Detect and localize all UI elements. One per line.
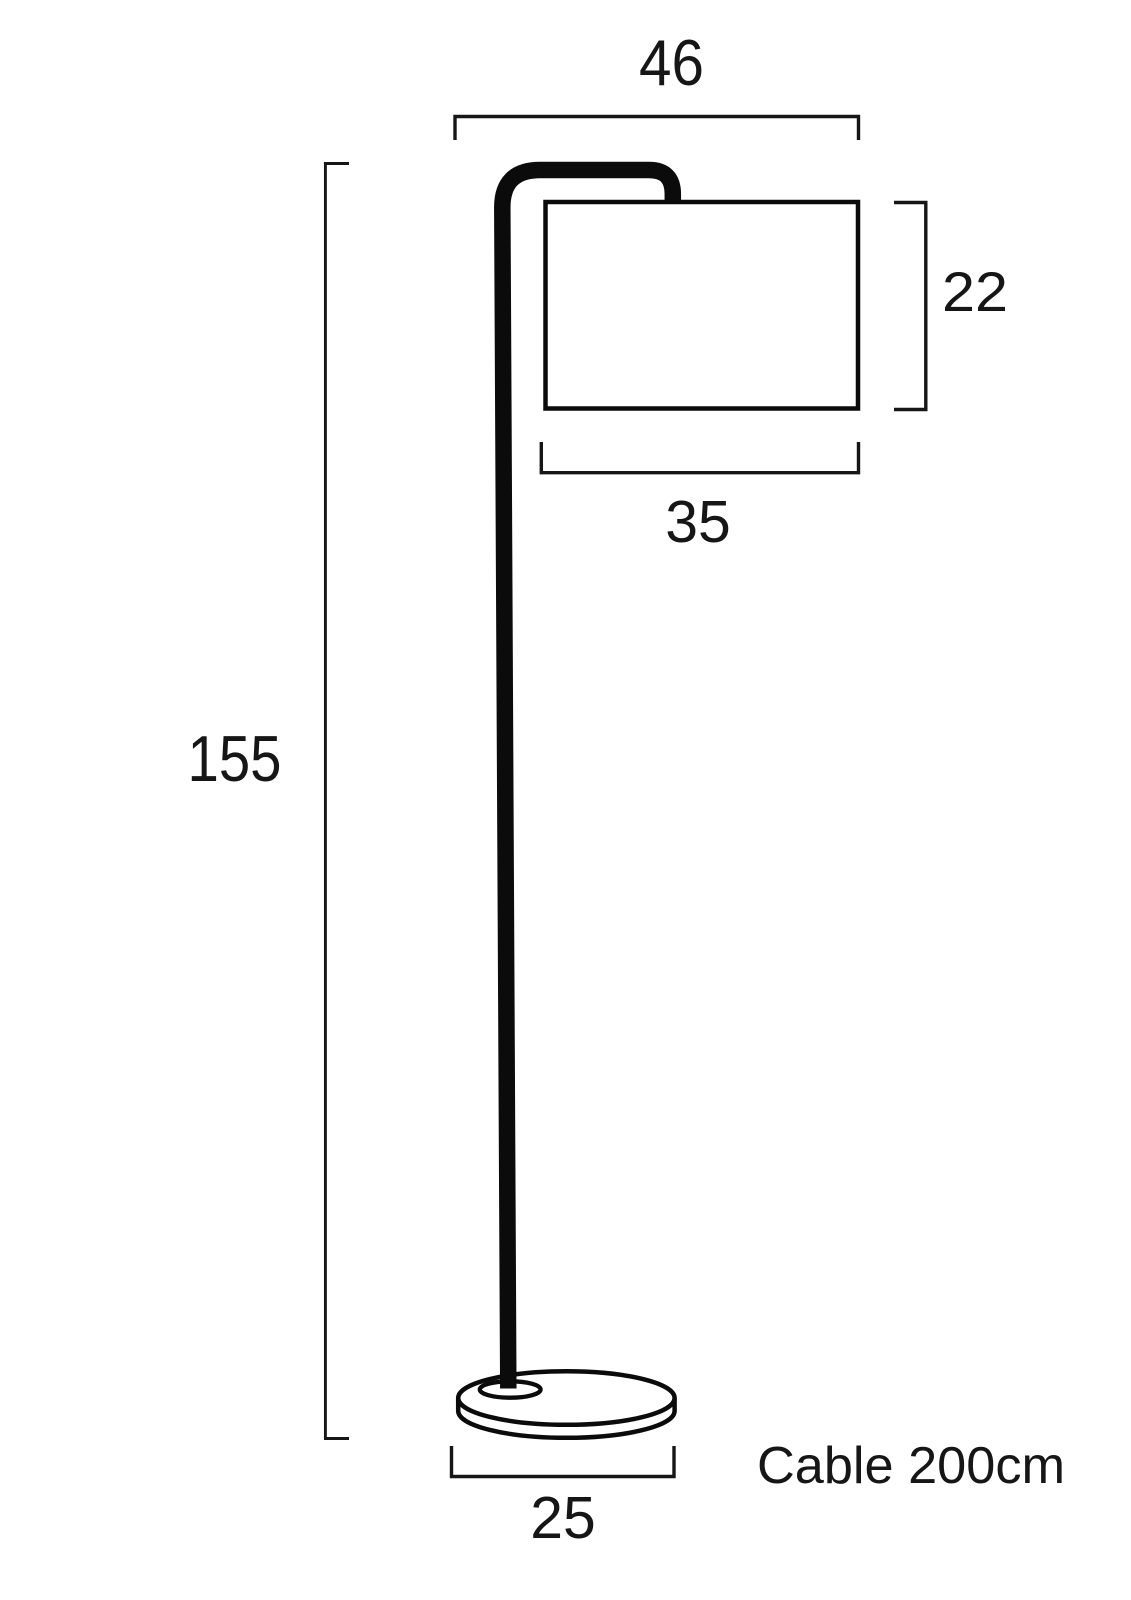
- svg-text:35: 35: [665, 489, 731, 555]
- svg-text:46: 46: [639, 26, 704, 99]
- svg-text:155: 155: [188, 722, 282, 795]
- svg-text:Cable 200cm: Cable 200cm: [757, 1437, 1065, 1495]
- svg-text:25: 25: [530, 1485, 596, 1551]
- svg-text:22: 22: [942, 260, 1008, 323]
